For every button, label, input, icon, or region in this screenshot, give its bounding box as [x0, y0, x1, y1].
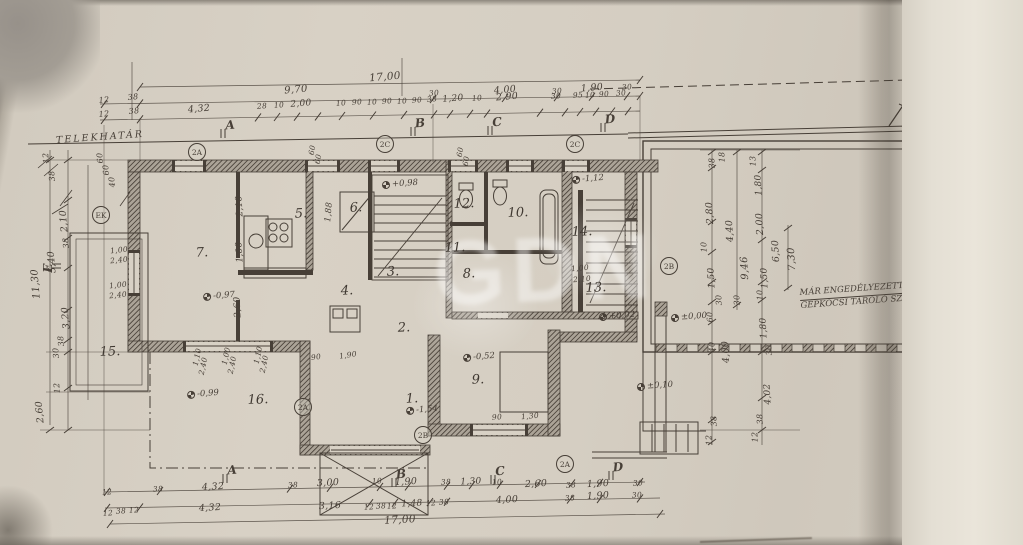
dimension-text: 30: [714, 294, 724, 305]
section-marker: C: [492, 115, 503, 130]
dimension-text: 1,00: [234, 241, 245, 263]
dimension-text: 1,50: [759, 267, 770, 289]
dimension-text: 4,00: [496, 494, 519, 506]
dimension-text: 30: [551, 91, 562, 101]
dimension-text: 38: [288, 480, 299, 490]
dimension-text: 30: [51, 347, 61, 359]
level-marker: -0,99: [187, 388, 219, 400]
dimension-text: 38: [56, 335, 66, 347]
dimension-text: 40: [107, 176, 117, 188]
dimension-text: 9,70: [284, 83, 308, 96]
dimension-text: 2,10: [234, 195, 245, 217]
room-number: 4.: [341, 283, 354, 298]
room-number: 8.: [463, 266, 476, 281]
adjacent-page: FÖLDSZINTI ALAPRAJZ: [902, 0, 1023, 545]
dimension-text: 38: [565, 493, 576, 503]
room-number: 5.: [295, 206, 308, 221]
dimension-text: 10: [699, 241, 709, 252]
dimension-text: 60: [101, 164, 111, 176]
dimension-text: 12: [98, 109, 110, 119]
level-marker: +0,98: [382, 178, 419, 190]
wall-type-marker: 2B: [660, 257, 678, 275]
dimension-text: 1,90: [587, 490, 610, 502]
dimension-text: 2,40: [110, 255, 129, 266]
level-marker: -1,12: [572, 173, 604, 185]
dimension-text: 90: [599, 89, 610, 99]
dimension-text: 3,00: [317, 477, 340, 489]
dimension-text: 1,80: [753, 174, 764, 196]
wall-type-marker: 2A: [188, 143, 206, 161]
dimension-text: 2,60: [34, 400, 47, 423]
dimension-text: 9,46: [739, 256, 751, 280]
wall-type-marker: 2C: [566, 135, 584, 153]
section-marker: A: [227, 463, 237, 478]
dimension-text: 10: [472, 93, 483, 103]
dimension-text: 17,00: [384, 513, 416, 527]
dimension-text: 10: [397, 96, 408, 106]
dimension-text: 12: [102, 487, 113, 497]
dimension-text: 1,80: [758, 317, 769, 339]
room-number: 2.: [398, 320, 411, 335]
dimension-text: 12: [98, 95, 110, 105]
dimension-text: 38: [709, 415, 719, 426]
dimension-text: 30: [632, 490, 643, 500]
dimension-text: 38: [707, 157, 717, 168]
dimension-text: 12: [129, 505, 140, 515]
dimension-text: 13: [748, 155, 758, 166]
wall-type-marker: 2B: [414, 426, 432, 444]
dimension-text: 95: [573, 90, 584, 100]
dimension-text: 10: [274, 100, 285, 110]
dimension-text: 38: [128, 106, 140, 116]
dimension-text: 38: [439, 497, 450, 507]
dimension-text: 2,40: [109, 290, 128, 301]
dimension-text: 30: [616, 88, 627, 98]
level-marker: -0,52: [463, 351, 495, 363]
dimension-text: 90: [382, 96, 393, 106]
dimension-text: 38: [127, 92, 139, 102]
wall-type-marker: EK: [92, 206, 110, 224]
dimension-text: 1,90: [339, 349, 358, 360]
dimension-text: 90: [412, 95, 423, 105]
dimension-text: 90: [492, 412, 503, 422]
dimension-text: 30: [732, 294, 742, 305]
room-number: 6.: [350, 200, 363, 215]
dimension-text: 38: [441, 477, 452, 487]
dimension-text: 38: [427, 94, 438, 104]
scanned-floor-plan-page: GDN 1.2.3.4.5.6.7.8.9.10.11.12.13.14.15.…: [0, 0, 1023, 545]
dimension-text: 7,30: [786, 247, 798, 271]
dimension-text: 3,20: [60, 306, 73, 329]
dimension-text: 4,00: [720, 341, 732, 364]
wall-type-marker: 2A: [556, 455, 574, 473]
dimension-text: 38: [376, 501, 387, 511]
dimension-text: 38: [153, 484, 164, 494]
dimension-text: 12: [750, 431, 760, 442]
dimension-text: 40: [707, 341, 717, 352]
wall-type-marker: 2C: [376, 135, 394, 153]
dimension-text: 60: [95, 152, 105, 164]
dimension-text: 3,16: [319, 500, 342, 512]
room-number: 14.: [571, 224, 592, 240]
dimension-text: 10: [585, 90, 596, 100]
dimension-text: 10: [372, 476, 383, 486]
room-number: 7.: [196, 245, 209, 260]
dimension-text: 2,00: [754, 213, 766, 236]
dimension-text: 2,10: [58, 209, 71, 232]
room-number: 15.: [99, 344, 120, 360]
dimension-text: 38: [61, 237, 71, 249]
dimension-text: 2,10: [573, 274, 592, 285]
room-number: 12.: [453, 196, 474, 212]
dimension-text: 10: [336, 98, 347, 108]
dimension-text: 4,32: [199, 502, 222, 514]
section-marker: E: [41, 263, 55, 272]
dimension-text: 12: [103, 508, 114, 518]
dimension-text: 12: [364, 502, 375, 512]
section-marker: C: [495, 464, 506, 479]
dimension-text: 30: [764, 344, 774, 355]
room-number: 11.: [444, 240, 465, 256]
dimension-text: 10: [367, 97, 378, 107]
dimension-text: 1,50: [706, 267, 717, 289]
level-marker: ±0,00: [671, 311, 708, 323]
dimension-text: 38: [566, 480, 577, 490]
dimension-text: 1,88: [323, 202, 335, 223]
level-marker: -0,97: [203, 290, 235, 302]
dimension-text: 10: [755, 289, 765, 300]
dimension-text: 1,48: [401, 498, 423, 509]
dimension-text: 4,32: [187, 103, 210, 116]
level-marker: ±0,10: [637, 380, 674, 392]
section-marker: B: [395, 467, 406, 482]
dimension-text: 1,20: [442, 93, 464, 105]
dimension-text: 2,00: [290, 98, 312, 110]
dimension-text: 38: [755, 413, 765, 424]
room-number: 10.: [507, 205, 528, 221]
section-marker: D: [604, 112, 616, 127]
dimension-text: 12: [704, 434, 714, 445]
dimension-text: 12: [52, 382, 62, 394]
dimension-text: 2,60: [525, 478, 548, 490]
room-number: 3.: [387, 264, 400, 279]
dimension-text: 10: [492, 477, 503, 487]
dimension-text: 1,00: [571, 263, 590, 274]
dimension-text: 90: [352, 97, 363, 107]
dimension-text: 30: [633, 478, 644, 488]
wall-type-marker: 2A: [294, 398, 312, 416]
section-marker: A: [225, 118, 235, 133]
dimension-text: 17,00: [369, 70, 401, 85]
dimension-text: 60: [461, 155, 472, 167]
level-marker: +0,02: [599, 310, 636, 322]
dimension-text: 1,90: [587, 478, 610, 490]
dimension-text: 2,90: [495, 91, 518, 104]
dimension-text: 1,30: [460, 476, 482, 487]
dimension-text: 28: [257, 101, 268, 111]
dimension-text: 18: [717, 151, 727, 162]
section-marker: B: [414, 116, 425, 131]
dimension-text: 4,02: [762, 383, 773, 405]
dimension-text: 38: [47, 170, 57, 182]
dimension-text: 2,80: [704, 202, 716, 225]
level-marker: -1,54: [406, 404, 438, 416]
dimension-text: 11,30: [29, 269, 43, 300]
dimension-text: 4,32: [202, 481, 225, 493]
dimension-text: 1,30: [521, 411, 540, 422]
dimension-text: 12: [426, 498, 437, 508]
dimension-text: 12: [41, 152, 51, 164]
dimension-text: 6,50: [770, 240, 782, 263]
room-number: 16.: [247, 392, 268, 408]
dimension-text: 90: [310, 352, 321, 362]
dimension-text: 38: [116, 506, 127, 516]
dimension-text: 4,40: [724, 220, 736, 243]
dimension-text: 60: [313, 153, 324, 165]
dimension-text: 12: [387, 501, 398, 511]
room-number: 9.: [472, 372, 485, 387]
section-marker: D: [612, 460, 624, 475]
